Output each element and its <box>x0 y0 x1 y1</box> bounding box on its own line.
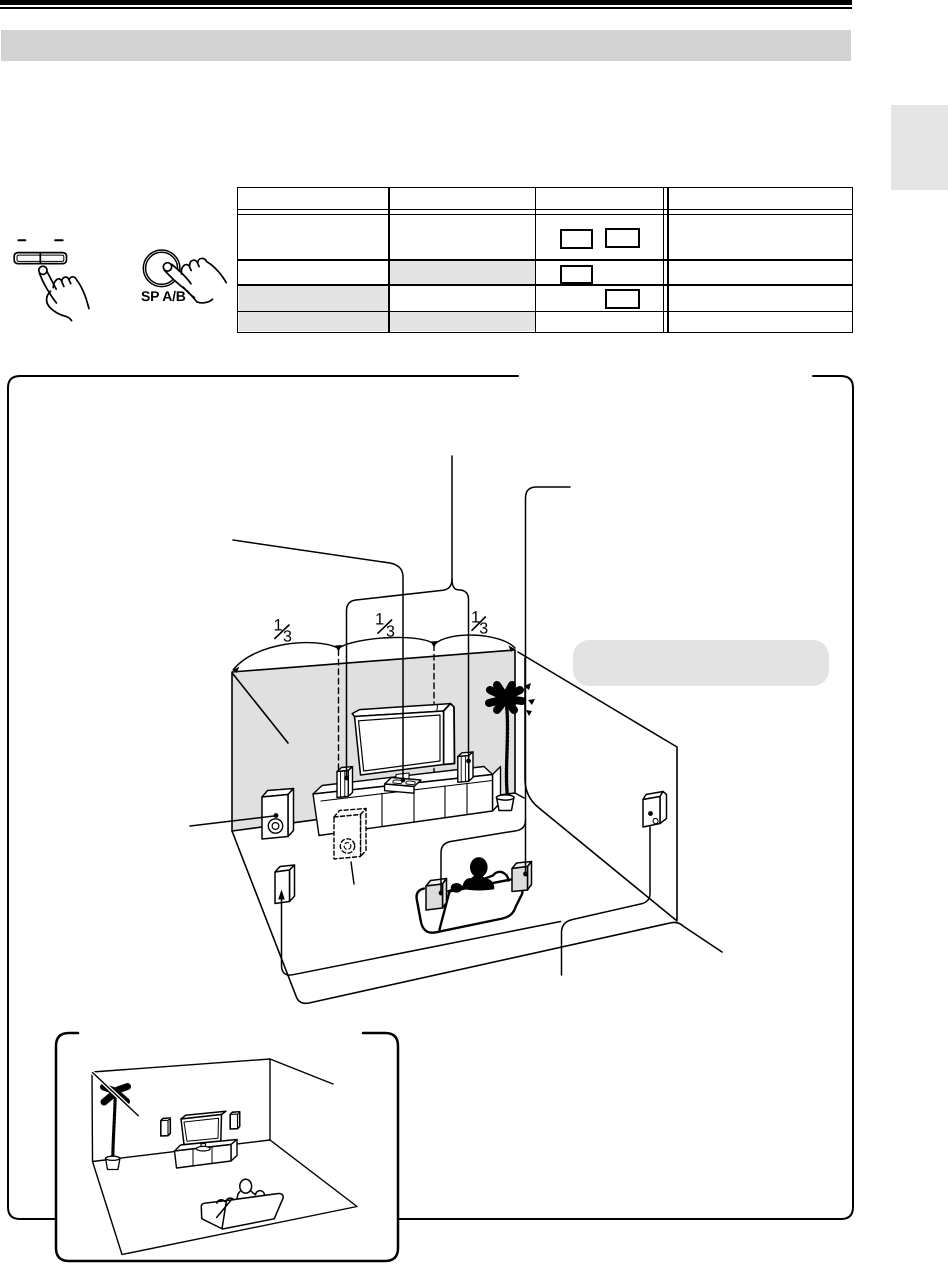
svg-text:SP A/B: SP A/B <box>141 288 186 304</box>
svg-text:3: 3 <box>479 620 488 637</box>
svg-text:1: 1 <box>375 611 384 629</box>
svg-text:3: 3 <box>386 624 395 641</box>
svg-text:3: 3 <box>283 629 292 646</box>
